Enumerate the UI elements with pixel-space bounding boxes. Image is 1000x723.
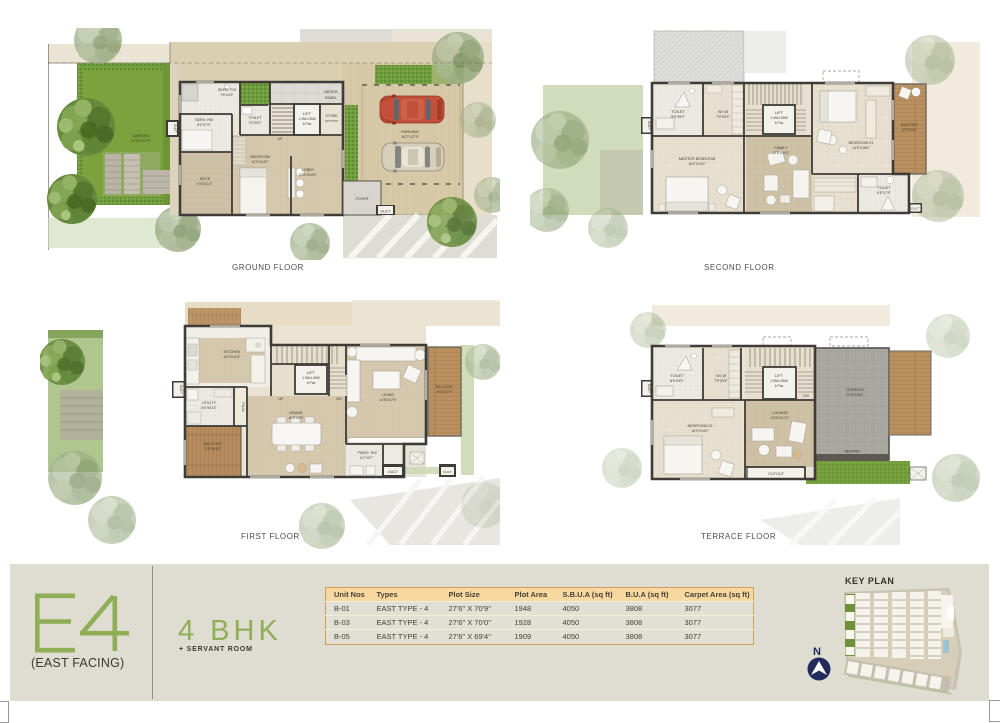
svg-text:12'8"X11'10": 12'8"X11'10" — [771, 416, 791, 420]
svg-text:1.55x1.55M: 1.55x1.55M — [770, 379, 787, 383]
svg-text:8'0"X7'0": 8'0"X7'0" — [197, 123, 211, 127]
svg-text:7'0"X9'4": 7'0"X9'4" — [714, 379, 728, 383]
svg-text:20'8"X26'8": 20'8"X26'8" — [846, 393, 864, 397]
svg-text:DN: DN — [336, 397, 342, 401]
svg-text:7'6"X4'4": 7'6"X4'4" — [220, 93, 234, 97]
svg-text:7'0"X9'4": 7'0"X9'4" — [716, 115, 730, 119]
svg-text:LOUNGE: LOUNGE — [772, 411, 789, 415]
svg-text:SERV. RM: SERV. RM — [195, 118, 213, 122]
svg-text:DECK: DECK — [200, 177, 211, 181]
svg-text:DUCT: DUCT — [443, 470, 451, 474]
svg-text:6'5"X16'6": 6'5"X16'6" — [902, 128, 918, 132]
svg-text:10'3"X5'0": 10'3"X5'0" — [325, 119, 339, 123]
svg-text:BEDROOM 02: BEDROOM 02 — [688, 424, 713, 428]
svg-text:UP: UP — [279, 397, 285, 401]
svg-text:17'10"X27'9": 17'10"X27'9" — [131, 139, 152, 143]
svg-text:CUTOUT: CUTOUT — [768, 472, 784, 476]
svg-text:DUCT: DUCT — [388, 470, 399, 474]
svg-text:DUCT: DUCT — [911, 207, 919, 211]
svg-text:6 Pas: 6 Pas — [307, 381, 316, 385]
svg-text:DUCT: DUCT — [179, 385, 183, 394]
svg-text:6 Pas: 6 Pas — [775, 384, 784, 388]
svg-text:1.55x1.55M: 1.55x1.55M — [302, 376, 319, 380]
svg-text:BALCONY: BALCONY — [204, 442, 223, 446]
svg-text:DN: DN — [803, 394, 809, 398]
svg-text:BALCONY: BALCONY — [901, 123, 919, 127]
svg-text:LIFT: LIFT — [775, 373, 784, 378]
svg-text:MASTER BEDROOM: MASTER BEDROOM — [679, 157, 716, 161]
svg-text:LOBBY: LOBBY — [302, 168, 315, 172]
svg-text:DUCT: DUCT — [381, 210, 392, 214]
svg-text:6 Pas: 6 Pas — [303, 122, 312, 126]
svg-text:8'6"X6'10": 8'6"X6'10" — [201, 406, 217, 410]
svg-text:6'0"X17'5": 6'0"X17'5" — [437, 390, 453, 394]
svg-text:TOILET: TOILET — [248, 116, 262, 120]
svg-text:DUCT: DUCT — [173, 124, 177, 133]
svg-text:DINING: DINING — [289, 411, 302, 415]
svg-text:PARKING: PARKING — [401, 129, 419, 134]
svg-text:KITCHEN: KITCHEN — [224, 350, 241, 354]
svg-text:UP: UP — [278, 137, 284, 141]
svg-text:METER: METER — [324, 90, 338, 94]
svg-text:14'3"X10'2": 14'3"X10'2" — [223, 355, 241, 359]
svg-text:PUJA: PUJA — [241, 402, 245, 412]
svg-text:W.I.W: W.I.W — [718, 110, 729, 114]
svg-text:8'6"X5'0": 8'6"X5'0" — [670, 379, 684, 383]
svg-text:11'3"X14'0": 11'3"X14'0" — [251, 160, 269, 164]
svg-text:TOILET: TOILET — [877, 186, 891, 190]
svg-text:12'8"X14'0": 12'8"X14'0" — [772, 151, 790, 155]
svg-text:LIVING: LIVING — [382, 393, 394, 397]
svg-text:1.35x1.35M: 1.35x1.35M — [298, 117, 315, 121]
svg-text:7'6"X5'0": 7'6"X5'0" — [248, 121, 262, 125]
svg-text:6'2"X5'7": 6'2"X5'7" — [360, 456, 374, 460]
svg-text:18'2"X17'0": 18'2"X17'0" — [401, 135, 420, 139]
svg-text:SERV. TOI: SERV. TOI — [218, 88, 236, 92]
svg-text:16'0"X14'0": 16'0"X14'0" — [688, 162, 706, 166]
svg-text:BALCONY: BALCONY — [436, 385, 454, 389]
svg-text:TOILET: TOILET — [671, 110, 685, 114]
svg-text:9'6"X6'10": 9'6"X6'10" — [205, 447, 221, 451]
svg-text:LIFT: LIFT — [775, 110, 784, 115]
svg-text:FOYER: FOYER — [355, 197, 368, 201]
svg-text:TERRACE: TERRACE — [846, 388, 865, 392]
svg-text:8'6"X5'0": 8'6"X5'0" — [671, 115, 685, 119]
svg-text:BEDROOM 01: BEDROOM 01 — [849, 141, 874, 145]
svg-text:14'8"X17'5": 14'8"X17'5" — [379, 398, 397, 402]
svg-text:UTILITY: UTILITY — [202, 401, 217, 405]
svg-text:6'5"X7'5": 6'5"X7'5" — [877, 191, 891, 195]
svg-text:LIFT: LIFT — [303, 111, 312, 116]
svg-text:6 Pas: 6 Pas — [775, 121, 784, 125]
svg-text:8'10"X34'9": 8'10"X34'9" — [299, 173, 317, 177]
svg-text:STORE: STORE — [325, 114, 338, 118]
svg-text:DUCT: DUCT — [647, 384, 651, 393]
svg-text:FAMILY: FAMILY — [774, 146, 788, 150]
svg-text:6'0"X11'2": 6'0"X11'2" — [197, 182, 213, 186]
svg-text:SEATING: SEATING — [844, 450, 860, 454]
svg-text:16'8"X9'8": 16'8"X9'8" — [288, 416, 304, 420]
svg-text:PWDR. RM: PWDR. RM — [357, 451, 376, 455]
svg-text:DUCT: DUCT — [647, 121, 651, 130]
svg-text:TOILET: TOILET — [670, 374, 684, 378]
svg-text:LIFT: LIFT — [307, 370, 316, 375]
svg-text:1.55x1.55M: 1.55x1.55M — [770, 116, 787, 120]
svg-text:BEDROOM: BEDROOM — [250, 155, 270, 159]
svg-text:16'0"X14'0": 16'0"X14'0" — [691, 429, 709, 433]
svg-text:GARDEN: GARDEN — [132, 133, 149, 138]
svg-text:W.I.W: W.I.W — [716, 374, 727, 378]
svg-text:PANEL: PANEL — [325, 96, 337, 100]
svg-text:14'9"X16'6": 14'9"X16'6" — [852, 146, 870, 150]
